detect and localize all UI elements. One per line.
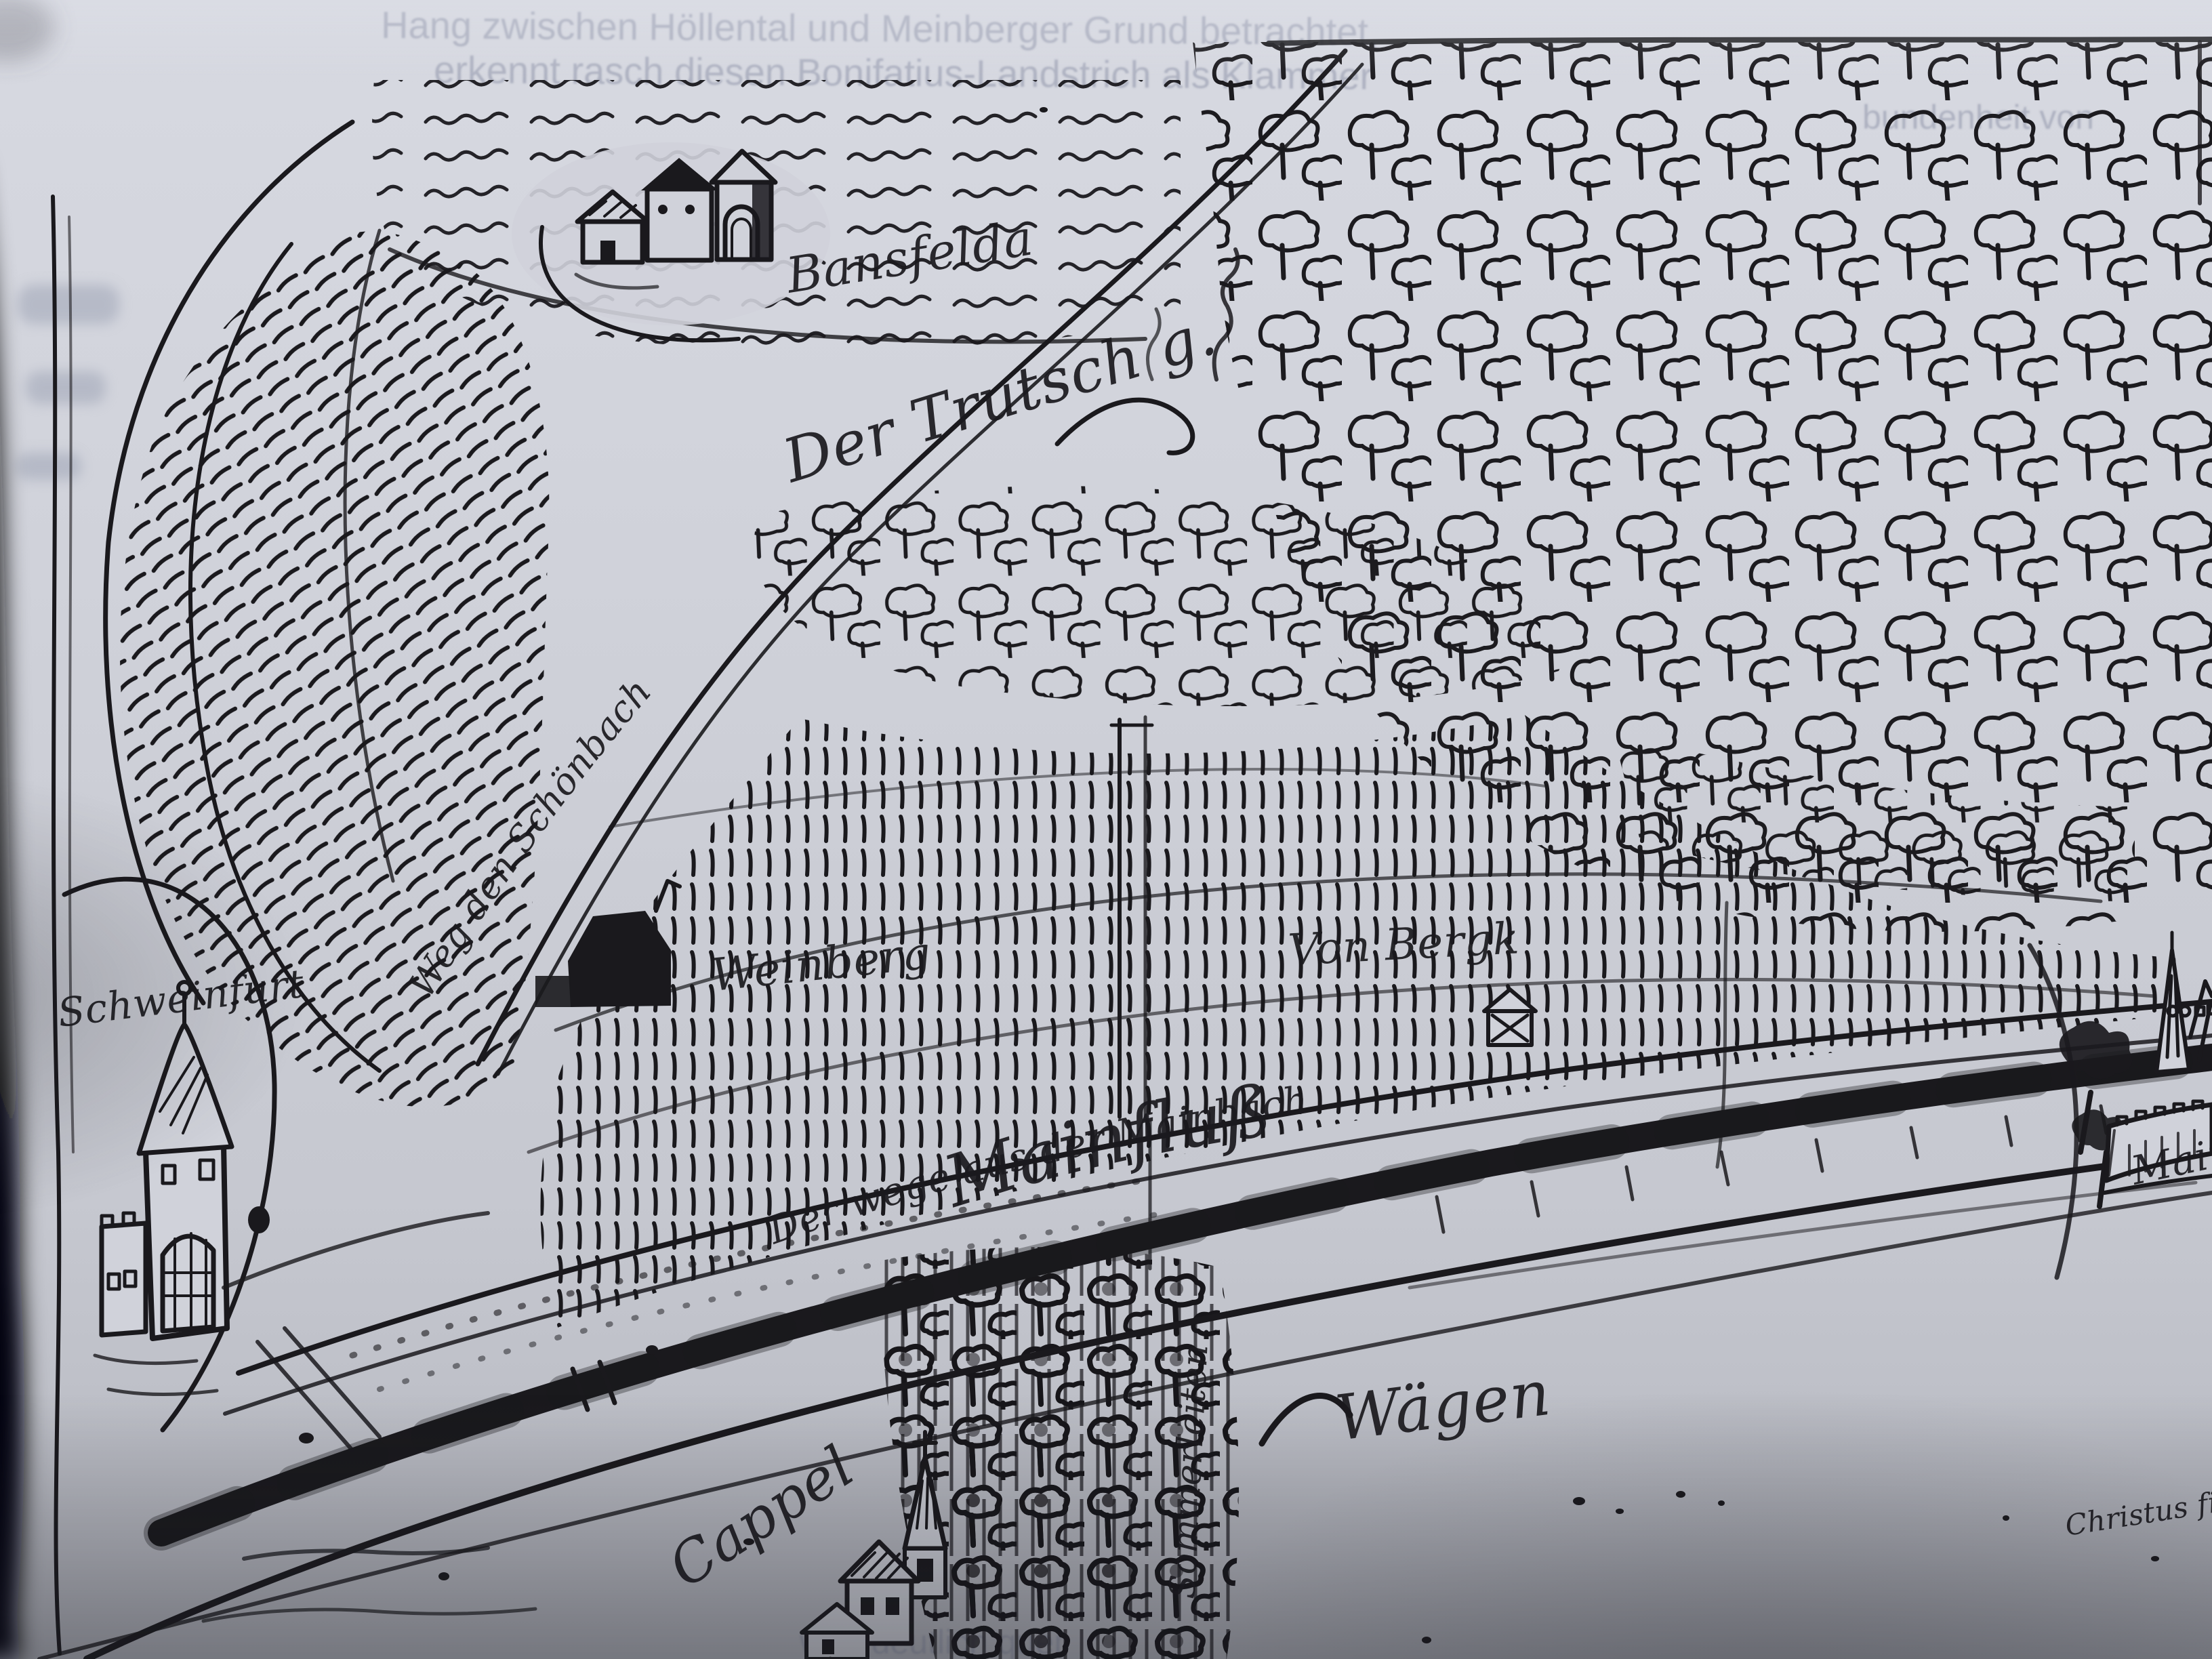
book-page-photo: Hang zwischen Höllental und Meinberger G… (0, 0, 2212, 1659)
ghost-smudges-left-margin (16, 285, 119, 480)
label-waegen: Wägen (1332, 1357, 1555, 1455)
label-annotation-corner: Christus fird (2063, 1481, 2212, 1542)
map-border-left (53, 197, 73, 1654)
label-cappel: Cappel (657, 1433, 866, 1600)
page-gutter-shadow (0, 0, 54, 1659)
farm-building-drawing (535, 881, 680, 1007)
historical-map-drawing: Hang zwischen Höllental und Meinberger G… (0, 0, 2212, 1659)
